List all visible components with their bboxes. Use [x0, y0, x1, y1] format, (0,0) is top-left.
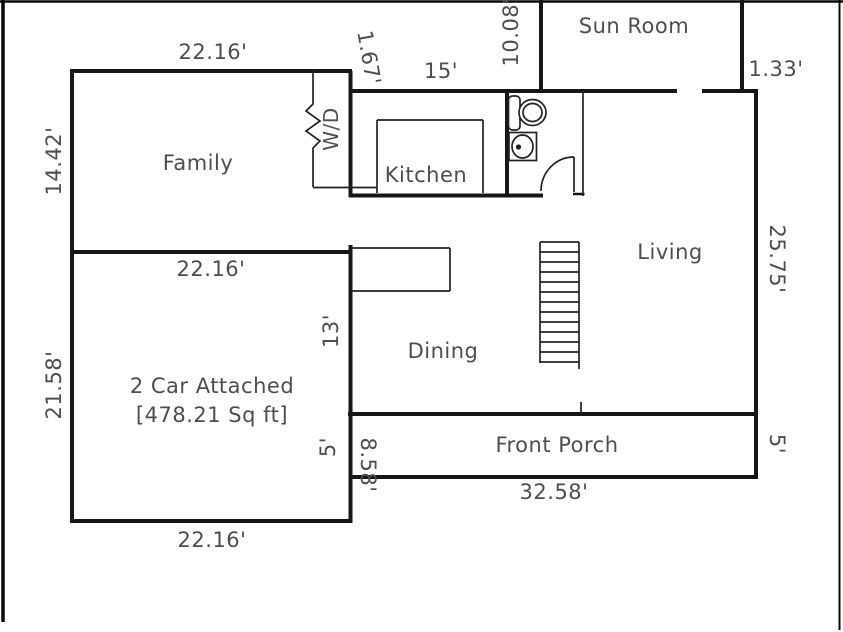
- photo-border: [0, 0, 843, 630]
- room-label-porch: Front Porch: [495, 433, 618, 457]
- sink-fixture: [509, 133, 537, 161]
- room-label-family: Family: [163, 151, 234, 175]
- toilet-fixture: [509, 96, 547, 130]
- dim-label-porch-left: 5': [316, 437, 340, 457]
- room-label-sunroom: Sun Room: [579, 14, 689, 38]
- dim-label-porch-bottom: 32.58': [520, 480, 589, 504]
- dim-label-garage-left: 21.58': [42, 351, 66, 420]
- room-label-garage-area: [478.21 Sq ft]: [136, 403, 288, 427]
- room-label-dining: Dining: [408, 339, 479, 363]
- door-swing: [541, 157, 574, 191]
- room-label-kitchen: Kitchen: [385, 163, 467, 187]
- dim-label-sunroom-left: 10.08': [499, 0, 523, 66]
- dim-label-porch-right: 5': [765, 434, 789, 454]
- dim-label-kitchen-top: 15': [424, 59, 458, 83]
- dim-label-garage-bottom: 22.16': [178, 528, 247, 552]
- washer-dryer-zigzag-wall: [306, 71, 320, 187]
- dim-label-living-right: 25.75': [765, 225, 789, 294]
- dim-label-dining-left: 13': [319, 314, 343, 348]
- labels: 22.16' 1.67' 15' 10.08' Sun Room 1.33' 1…: [42, 0, 804, 552]
- staircase: [540, 242, 579, 369]
- dim-label-family-left: 14.42': [42, 127, 66, 196]
- floor-plan-page: 22.16' 1.67' 15' 10.08' Sun Room 1.33' 1…: [0, 0, 843, 632]
- bathroom-fixtures: [509, 96, 547, 161]
- room-label-living: Living: [637, 240, 702, 264]
- dim-label-jog: 1.67': [352, 29, 385, 87]
- dim-label-family-bottom: 22.16': [177, 257, 246, 281]
- dim-label-sunroom-jog: 1.33': [748, 57, 803, 81]
- floor-plan-canvas: 22.16' 1.67' 15' 10.08' Sun Room 1.33' 1…: [0, 0, 843, 632]
- dim-label-family-top: 22.16': [179, 40, 248, 64]
- washer-dryer-label: W/D: [319, 107, 343, 150]
- room-label-garage: 2 Car Attached: [130, 374, 294, 398]
- dim-label-garage-right: 8.58': [356, 437, 380, 492]
